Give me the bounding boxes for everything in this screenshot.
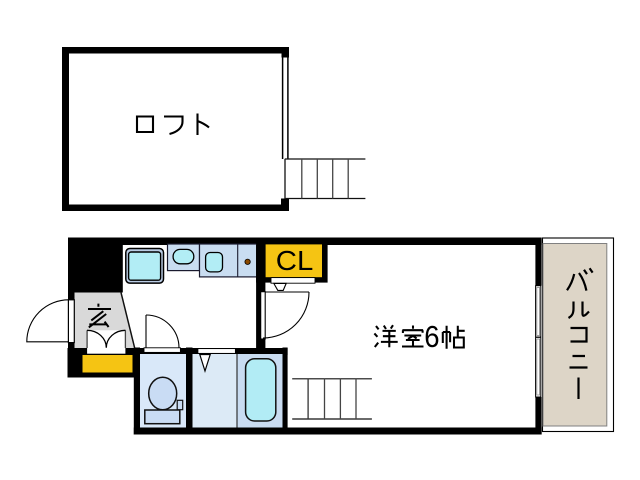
svg-text:CL: CL (276, 245, 314, 276)
svg-text:6: 6 (424, 320, 439, 354)
